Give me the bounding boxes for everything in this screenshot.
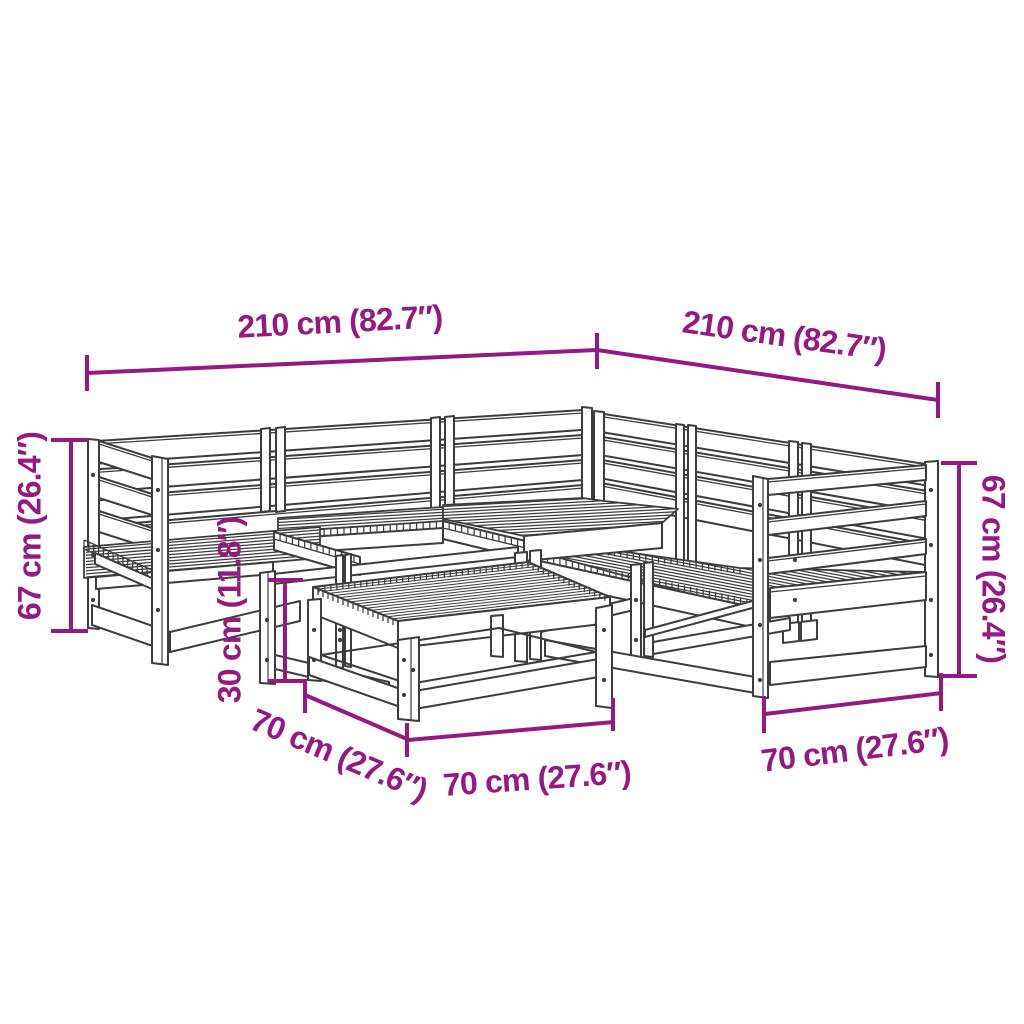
svg-text:67 cm (26.4″): 67 cm (26.4″)	[976, 475, 1012, 663]
svg-text:30 cm (11.8″): 30 cm (11.8″)	[211, 517, 247, 704]
svg-text:67 cm (26.4″): 67 cm (26.4″)	[11, 432, 47, 620]
